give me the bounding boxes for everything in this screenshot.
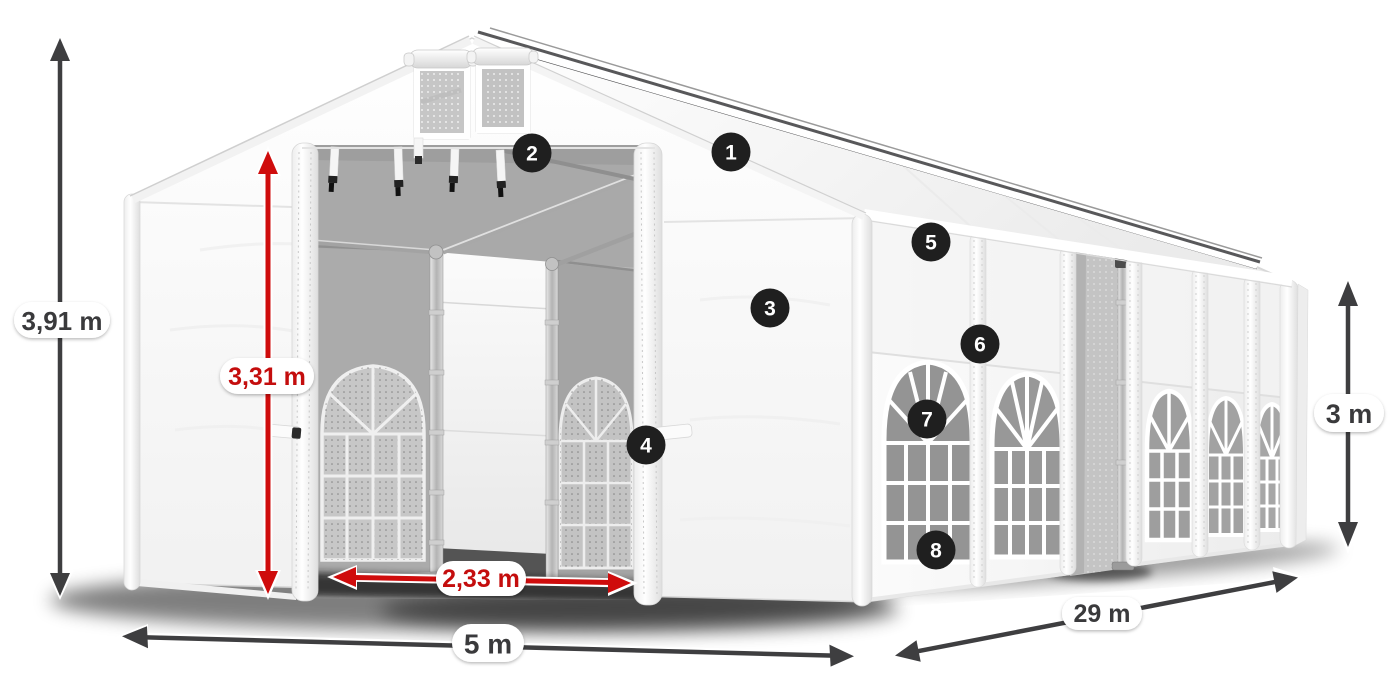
post-sleeve (1060, 247, 1076, 575)
vent-rolled-cover (472, 48, 534, 65)
front-right-corner-roll (852, 214, 872, 606)
inner-left-door-panel (306, 246, 436, 578)
inner-right-door-panel (548, 260, 640, 588)
label-front-width: 5 m (464, 629, 512, 660)
far-corner-roll (1280, 280, 1298, 548)
callout-number-1: 1 (725, 142, 737, 165)
side-window-bay-3 (1147, 391, 1192, 540)
callout-badge-1: 1 (712, 133, 751, 172)
callout-badge-6: 6 (961, 325, 1000, 364)
diagram-canvas: 3,91 m 3,31 m 2,33 m 5 m 29 m 3 m 1 2 3 … (0, 0, 1400, 700)
callout-badge-8: 8 (917, 531, 956, 570)
callout-number-6: 6 (974, 334, 986, 357)
callout-badge-7: 7 (908, 400, 947, 439)
back-edge-sliver (1296, 284, 1308, 545)
callout-number-2: 2 (526, 143, 538, 166)
side-window-bay-1 (884, 362, 972, 562)
post-sleeve (1192, 268, 1208, 557)
post-sleeve (970, 233, 986, 587)
label-total-height: 3,91 m (22, 306, 103, 336)
callout-badge-5: 5 (912, 223, 951, 262)
callout-badge-4: 4 (627, 426, 666, 465)
see-through-gap (436, 252, 552, 580)
callout-number-7: 7 (921, 409, 933, 432)
callout-badge-3: 3 (751, 289, 790, 328)
vent-strap (414, 138, 423, 158)
label-side-height: 3 m (1326, 399, 1373, 429)
label-side-length: 29 m (1074, 600, 1131, 628)
side-window-bay-4 (1207, 398, 1245, 535)
post-sleeve (1244, 276, 1260, 550)
callout-number-8: 8 (930, 540, 942, 563)
vent-strap-buckle (415, 156, 422, 164)
tent-dimension-diagram: 3,91 m 3,31 m 2,33 m 5 m 29 m 3 m 1 2 3 … (0, 0, 1400, 700)
front-left-corner-roll (124, 194, 140, 590)
side-window-bay-2 (992, 374, 1062, 557)
callout-number-3: 3 (764, 298, 776, 321)
label-entrance-height: 3,31 m (228, 363, 306, 391)
vent-rolled-cover (409, 50, 473, 68)
entrance-right-post-sleeve (634, 143, 662, 605)
callout-badge-2: 2 (513, 134, 552, 173)
post-sleeve (1126, 257, 1142, 566)
side-doorway (1070, 249, 1134, 576)
callout-number-5: 5 (925, 232, 937, 255)
gable-vent-right (467, 48, 538, 133)
callout-number-4: 4 (640, 435, 652, 458)
entrance-interior (298, 140, 650, 605)
label-entrance-width: 2,33 m (442, 565, 520, 593)
